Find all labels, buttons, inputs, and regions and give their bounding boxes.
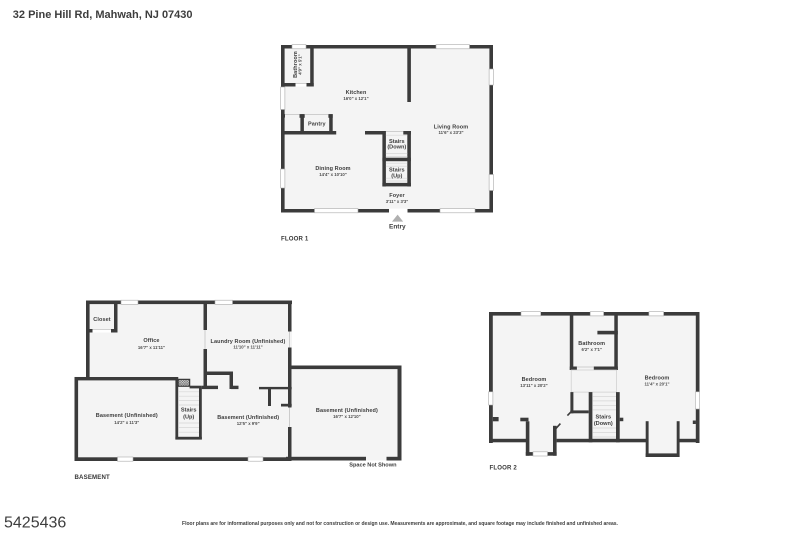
svg-text:14'4" x 10'10": 14'4" x 10'10": [319, 172, 347, 177]
svg-text:BASEMENT: BASEMENT: [75, 474, 111, 481]
svg-text:Basement (Unfinished): Basement (Unfinished): [96, 413, 158, 419]
svg-text:Dining Room: Dining Room: [315, 166, 350, 172]
svg-text:16'7" x 11'11": 16'7" x 11'11": [138, 345, 165, 350]
svg-text:Floor plans are for informatio: Floor plans are for informational purpos…: [182, 521, 619, 527]
svg-text:4'9" x 5'1": 4'9" x 5'1": [298, 54, 303, 74]
svg-text:Closet: Closet: [93, 317, 110, 323]
svg-text:13'11" x 20'2": 13'11" x 20'2": [520, 383, 547, 388]
svg-text:12'5" x 9'9": 12'5" x 9'9": [237, 421, 260, 426]
svg-text:11'4" x 20'1": 11'4" x 20'1": [645, 381, 670, 386]
svg-text:(Up): (Up): [391, 174, 402, 180]
svg-text:Stairs: Stairs: [181, 408, 197, 414]
svg-text:32 Pine Hill Rd, Mahwah, NJ 07: 32 Pine Hill Rd, Mahwah, NJ 07430: [13, 9, 193, 21]
svg-text:(Down): (Down): [594, 421, 613, 427]
svg-text:(Up): (Up): [183, 415, 194, 421]
svg-text:(Down): (Down): [387, 145, 406, 151]
svg-text:6'2" x 7'1": 6'2" x 7'1": [581, 347, 601, 352]
svg-text:Bedroom: Bedroom: [645, 375, 670, 381]
svg-text:Space Not Shown: Space Not Shown: [349, 463, 397, 469]
svg-text:FLOOR 2: FLOOR 2: [490, 464, 518, 471]
svg-text:Office: Office: [143, 338, 159, 344]
svg-text:Stairs: Stairs: [596, 414, 612, 420]
svg-text:5425436: 5425436: [4, 515, 66, 532]
svg-text:11'6" x 23'3": 11'6" x 23'3": [439, 130, 464, 135]
svg-text:16'0" x 12'1": 16'0" x 12'1": [343, 96, 368, 101]
svg-text:FLOOR 1: FLOOR 1: [281, 236, 309, 243]
svg-text:Stairs: Stairs: [389, 168, 405, 174]
svg-text:16'7" x 12'10": 16'7" x 12'10": [333, 414, 361, 419]
svg-text:14'2" x 11'3": 14'2" x 11'3": [114, 420, 139, 425]
svg-text:3'11" x 3'3": 3'11" x 3'3": [386, 199, 409, 204]
svg-text:Bedroom: Bedroom: [522, 377, 547, 383]
svg-text:Pantry: Pantry: [308, 121, 327, 127]
svg-text:11'10" x 11'11": 11'10" x 11'11": [233, 345, 262, 350]
svg-text:Entry: Entry: [389, 224, 406, 231]
